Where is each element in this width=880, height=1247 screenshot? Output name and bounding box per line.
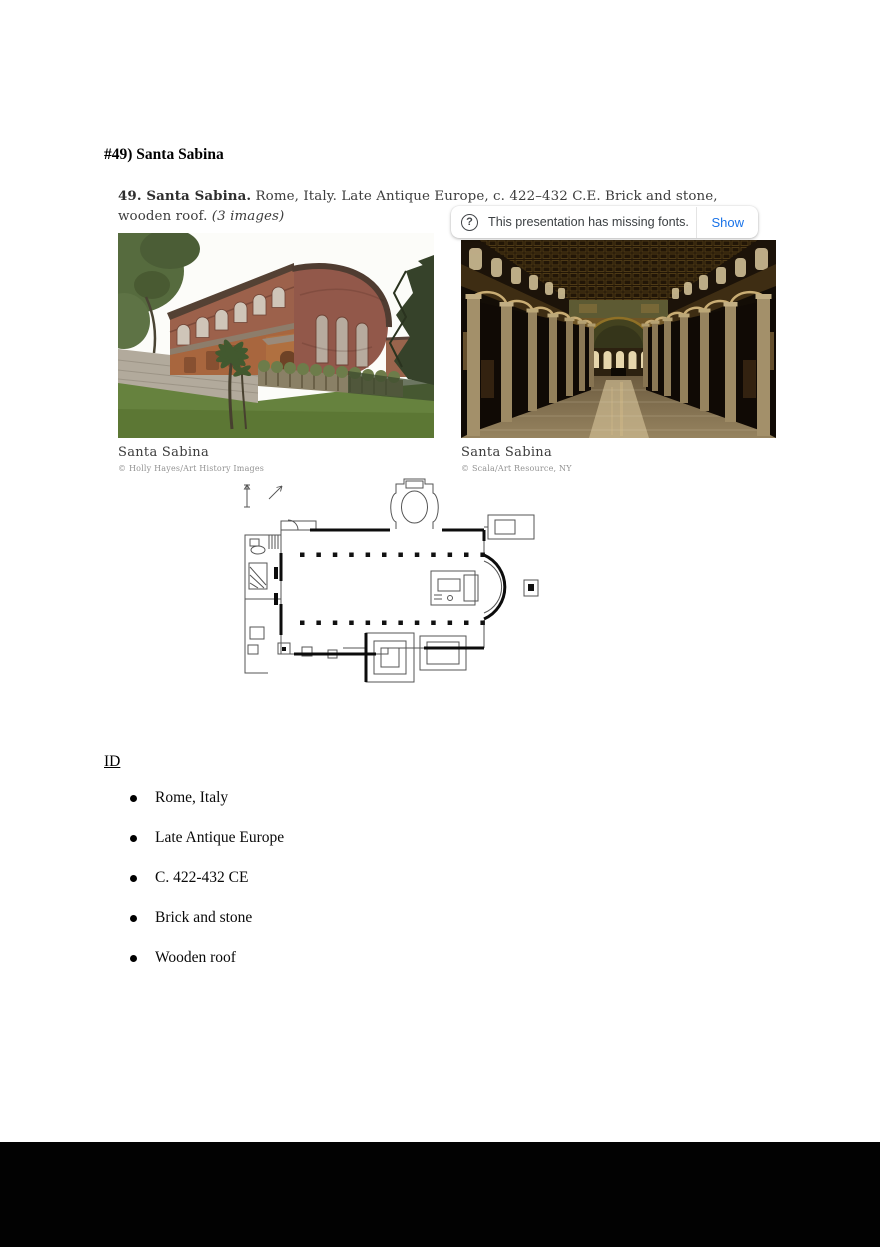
bullet-text: Wooden roof (155, 949, 236, 966)
exterior-photo (118, 233, 434, 438)
floor-plan-image (238, 477, 543, 687)
bullet-icon (130, 955, 137, 962)
show-button[interactable]: Show (697, 215, 758, 230)
bullet-text: C. 422-432 CE (155, 869, 248, 886)
list-item: Rome, Italy (126, 790, 284, 807)
page-title: #49) Santa Sabina (104, 146, 224, 164)
bullet-icon (130, 795, 137, 802)
question-circle-icon: ? (461, 214, 478, 231)
list-item: Brick and stone (126, 910, 284, 927)
bullet-icon (130, 875, 137, 882)
interior-photo (461, 240, 776, 438)
list-item: Wooden roof (126, 950, 284, 967)
bullet-icon (130, 915, 137, 922)
slide-caption-note: (3 images) (212, 209, 285, 224)
photo-caption-exterior: Santa Sabina © Holly Hayes/Art History I… (118, 445, 438, 473)
photo-title: Santa Sabina (118, 445, 438, 460)
id-section-heading: ID (104, 753, 120, 771)
toast-message: This presentation has missing fonts. (488, 215, 696, 229)
photo-title: Santa Sabina (461, 445, 781, 460)
bullet-text: Brick and stone (155, 909, 252, 926)
missing-fonts-toast: ? This presentation has missing fonts. S… (451, 206, 758, 238)
photo-credit: © Holly Hayes/Art History Images (118, 464, 438, 473)
footer-bar (0, 1142, 880, 1247)
bullet-text: Late Antique Europe (155, 829, 284, 846)
list-item: C. 422-432 CE (126, 870, 284, 887)
slide-caption-number: 49. Santa Sabina. (118, 188, 251, 204)
id-bullet-list: Rome, Italy Late Antique Europe C. 422-4… (126, 790, 284, 990)
list-item: Late Antique Europe (126, 830, 284, 847)
bullet-text: Rome, Italy (155, 789, 228, 806)
bullet-icon (130, 835, 137, 842)
photo-credit: © Scala/Art Resource, NY (461, 464, 781, 473)
photo-caption-interior: Santa Sabina © Scala/Art Resource, NY (461, 445, 781, 473)
